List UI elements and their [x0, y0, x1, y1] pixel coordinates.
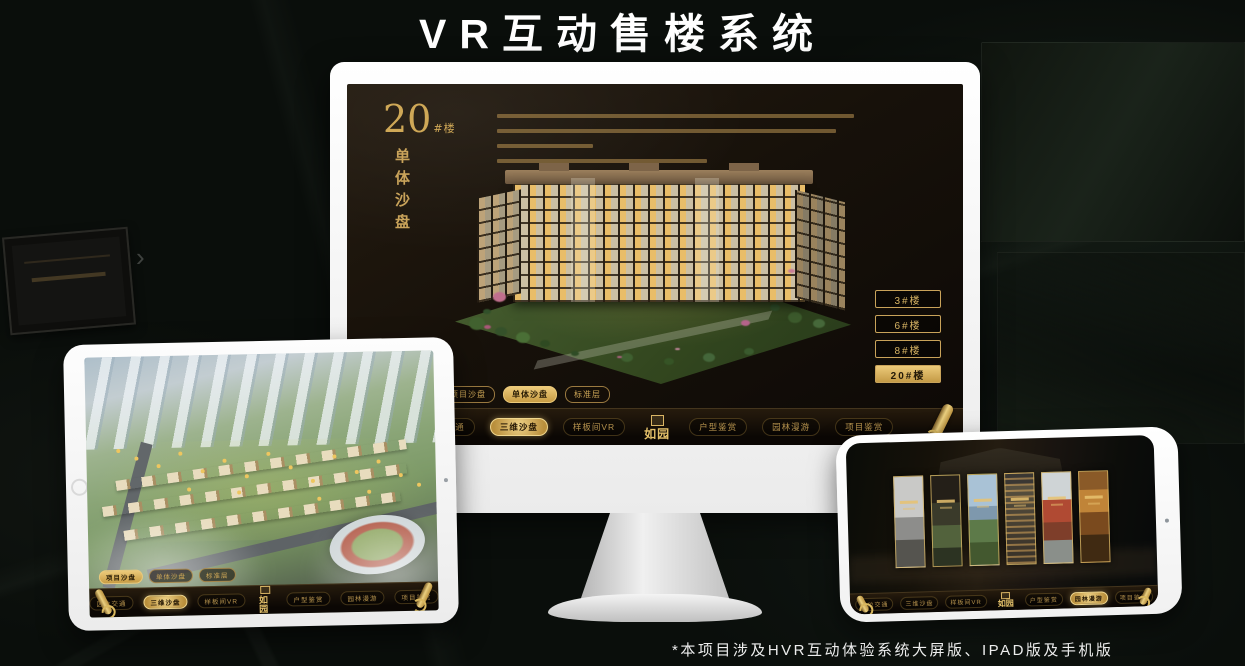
- background-photo: [981, 42, 1245, 242]
- monitor-stand-neck: [580, 513, 730, 601]
- brand-logo: 如园: [998, 592, 1014, 608]
- floor-button-group: 3#楼 6#楼 8#楼 20#楼: [875, 290, 941, 383]
- tab-standard-floor[interactable]: 标准层: [565, 386, 610, 403]
- phone-device: 区位交通 三维沙盘 样板间VR 如园 户型鉴赏 园林漫游 项目鉴赏: [835, 426, 1182, 622]
- sandtable-tabs: 项目沙盘 单体沙盘 标准层: [441, 386, 610, 403]
- sandtable-tabs: 项目沙盘 单体沙盘 标准层: [99, 568, 236, 585]
- nav-item-garden-tour[interactable]: 园林漫游: [1070, 591, 1108, 605]
- tablet-device: 项目沙盘 单体沙盘 标准层 区位交通 三维沙盘 样板间VR 如园 户型鉴赏 园林…: [63, 337, 459, 631]
- building-heading: 20#楼 单体沙盘: [383, 100, 456, 236]
- nav-item-garden-tour[interactable]: 园林漫游: [340, 590, 384, 605]
- nav-item-unit-plans[interactable]: 户型鉴赏: [286, 592, 330, 607]
- camera-icon: [444, 478, 448, 482]
- brand-logo: 如园: [644, 415, 670, 440]
- tab-project-sandtable[interactable]: 项目沙盘: [99, 569, 143, 584]
- building-number-markers[interactable]: [116, 449, 120, 453]
- nav-item-3d-sandtable[interactable]: 三维沙盘: [490, 418, 548, 436]
- building-wing-right: [795, 190, 845, 310]
- floor-button-6[interactable]: 6#楼: [875, 315, 941, 333]
- building-3d-viewport[interactable]: [447, 140, 867, 388]
- building-wing-left: [477, 189, 521, 302]
- brand-logo-text: 如园: [644, 428, 670, 440]
- background-photo: [997, 252, 1245, 444]
- brand-logo: 如园: [259, 586, 273, 614]
- tab-standard-floor[interactable]: 标准层: [199, 568, 236, 583]
- nav-item-showroom-vr[interactable]: 样板间VR: [197, 593, 245, 608]
- chevron-right-icon: ›: [136, 242, 145, 273]
- description-text: [497, 114, 865, 174]
- building-number-value: 20: [383, 97, 431, 141]
- nav-item-3d-sandtable[interactable]: 三维沙盘: [900, 596, 938, 610]
- background-plaque: [2, 227, 136, 336]
- stair-tower: [571, 178, 595, 302]
- nav-item-garden-tour[interactable]: 园林漫游: [762, 418, 820, 436]
- nav-item-unit-plans[interactable]: 户型鉴赏: [1025, 592, 1063, 606]
- nav-item-showroom-vr[interactable]: 样板间VR: [563, 418, 625, 436]
- page-title: VR互动售楼系统: [0, 0, 1245, 60]
- page: › VR互动售楼系统 20#楼 单体沙盘: [0, 0, 1245, 666]
- floor-button-20[interactable]: 20#楼: [875, 365, 941, 383]
- trees-green: [469, 317, 485, 330]
- building-model: [513, 184, 805, 302]
- brand-logo-text: 如园: [998, 600, 1014, 608]
- monitor-stand-base: [548, 594, 762, 622]
- footnote: *本项目涉及HVR互动体验系统大屏版、IPAD版及手机版: [672, 639, 1113, 660]
- seal-icon: [260, 586, 270, 594]
- nav-item-unit-plans[interactable]: 户型鉴赏: [689, 418, 747, 436]
- scene-card-eaves-garden[interactable]: [930, 474, 963, 567]
- nav-item-project-gallery[interactable]: 项目鉴赏: [835, 418, 893, 436]
- scene-gallery: [893, 470, 1110, 568]
- building-number: 20#楼: [383, 100, 456, 138]
- nav-item-showroom-vr[interactable]: 样板间VR: [945, 594, 987, 608]
- brand-logo-text: 如园: [259, 596, 273, 614]
- camera-icon: [1165, 518, 1169, 522]
- building-number-suffix: #楼: [433, 122, 455, 135]
- trees-pink: [493, 292, 506, 302]
- phone-screen: 区位交通 三维沙盘 样板间VR 如园 户型鉴赏 园林漫游 项目鉴赏: [846, 435, 1159, 615]
- scene-card-courtyard[interactable]: [893, 475, 926, 568]
- scene-card-landscape[interactable]: [967, 473, 1000, 566]
- floor-button-3[interactable]: 3#楼: [875, 290, 941, 308]
- scene-card-autumn[interactable]: [1041, 471, 1074, 564]
- seal-icon: [651, 415, 664, 426]
- tab-single-sandtable[interactable]: 单体沙盘: [149, 568, 193, 583]
- scene-card-interior[interactable]: [1078, 470, 1111, 563]
- stair-tower: [695, 178, 719, 302]
- tab-single-sandtable[interactable]: 单体沙盘: [503, 386, 557, 403]
- scene-card-building-night[interactable]: [1004, 472, 1037, 565]
- building-facade: [513, 184, 805, 302]
- section-title-vertical: 单体沙盘: [391, 148, 412, 236]
- aerial-background-buildings: [84, 350, 438, 450]
- nav-item-3d-sandtable[interactable]: 三维沙盘: [143, 595, 187, 610]
- tablet-screen: 项目沙盘 单体沙盘 标准层 区位交通 三维沙盘 样板间VR 如园 户型鉴赏 园林…: [84, 350, 438, 617]
- floor-button-8[interactable]: 8#楼: [875, 340, 941, 358]
